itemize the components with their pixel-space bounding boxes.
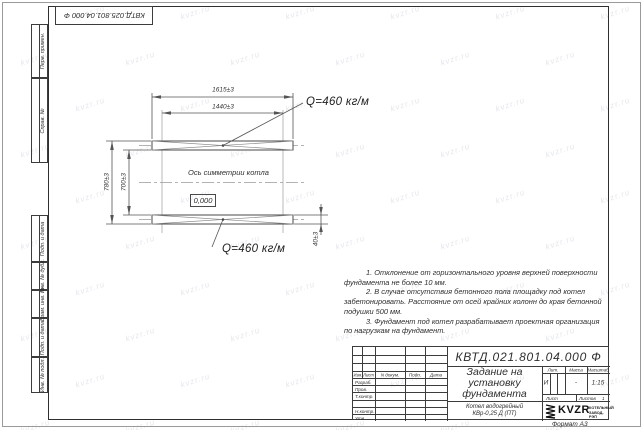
dim-beam-height: 40±3 — [313, 232, 320, 246]
dim-outer-height: 780±3 — [104, 173, 111, 191]
top-stamp-doc-number: КВТД.025.801.04.000 Ф — [64, 11, 145, 20]
dim-arrow — [127, 206, 131, 215]
sheets-label: Листов — [579, 396, 596, 401]
dim-arrow — [284, 95, 293, 99]
elevation-mark: 0,000 — [190, 194, 216, 207]
title-block: Изм. Лист N докум. Подп. Дата Разраб. Пр… — [352, 346, 609, 420]
margin-box-inv-podl: Инв. № подл. — [31, 357, 48, 393]
role-prov: Пров. — [355, 387, 367, 392]
sheets-value: 1 — [602, 396, 605, 401]
margin-box-inv-dubl: Инв. № дубл. — [31, 262, 48, 290]
company-tagline: КОТЕЛЬНЫЙ ЗАВОД-РЭП — [589, 406, 609, 420]
drawing-sheet: kvzr.rukvzr.rukvzr.rukvzr.rukvzr.rukvzr.… — [0, 0, 644, 430]
dim-arrow — [162, 111, 171, 115]
margin-box-label: Инв. № подл. — [40, 358, 46, 392]
role-utv: Утв. — [355, 416, 365, 421]
doc-number-cell: КВТД.021.801.04.000 Ф — [447, 347, 610, 366]
margin-box-label: Подп. и дата — [40, 320, 46, 354]
margin-box-sprav-n: Справ. № — [31, 78, 48, 163]
grid-line — [542, 373, 610, 374]
symmetry-axis-label: Ось симметрии котла — [188, 168, 269, 177]
grid-line — [375, 347, 376, 421]
role-razrab: Разраб. — [355, 380, 372, 385]
spring-icon — [545, 404, 556, 419]
dim-inner-width: 1440±3 — [212, 104, 234, 111]
company-tagline-line1: КОТЕЛЬНЫЙ — [589, 406, 609, 411]
format-label: Формат А3 — [552, 421, 588, 428]
margin-box-perv-primen: Перв. примен. — [31, 24, 48, 78]
mass-header: Масса — [569, 367, 583, 372]
drawing-title-cell: Задание на установку фундамента — [447, 366, 542, 401]
margin-box-podp-data-2: Подп. и дата — [31, 318, 48, 357]
elevation-value: 0,000 — [194, 196, 213, 205]
company-tagline-line2: ЗАВОД-РЭП — [589, 411, 609, 420]
margin-box-podp-data-1: Подп. и дата — [31, 215, 48, 262]
role-tkontr: Т.контр. — [355, 394, 374, 399]
dim-arrow — [152, 95, 161, 99]
product-name: Котел водогрейный КВр-0,25 Д (ПТ) — [461, 404, 529, 418]
top-stamp: КВТД.025.801.04.000 Ф — [55, 6, 153, 25]
margin-box-label: Взам. инв. № — [40, 287, 46, 321]
dim-arrow — [319, 224, 323, 232]
grid-line — [565, 366, 566, 394]
leader-line-top — [223, 103, 303, 146]
mass-value: - — [575, 380, 577, 387]
company-logo-text: KVZR — [558, 404, 590, 416]
grid-line — [353, 414, 447, 415]
note-line: 1. Отклонение от горизонтального уровня … — [344, 268, 602, 287]
header-sign: Подп. — [409, 372, 421, 377]
margin-box-label: Перв. примен. — [40, 33, 46, 70]
scale-header: Масштаб — [587, 367, 608, 372]
note-line: 3. Фундамент под котел разрабатывает про… — [344, 317, 602, 336]
product-name-cell: Котел водогрейный КВр-0,25 Д (ПТ) — [447, 401, 542, 421]
header-list: Лист — [363, 372, 374, 377]
grid-line — [405, 347, 406, 421]
grid-line — [557, 373, 558, 394]
grid-line — [353, 355, 447, 356]
load-label-bottom: Q=460 кг/м — [222, 243, 285, 255]
scale-value: 1:15 — [592, 380, 605, 387]
margin-box-vzam-inv: Взам. инв. № — [31, 290, 48, 318]
role-nkontr: Н.контр. — [355, 409, 374, 414]
dim-arrow — [110, 141, 114, 150]
dim-arrow — [319, 207, 323, 215]
dim-arrow — [127, 150, 131, 159]
grid-line — [576, 394, 577, 401]
grid-line — [353, 363, 447, 364]
dim-arrow — [110, 215, 114, 224]
doc-number: КВТД.021.801.04.000 Ф — [455, 350, 601, 364]
dim-outer-width: 1615±3 — [212, 87, 234, 94]
grid-line — [425, 347, 426, 421]
notes-block: 1. Отклонение от горизонтального уровня … — [344, 268, 602, 336]
margin-box-label: Справ. № — [40, 108, 46, 133]
lit-value: И — [544, 380, 549, 387]
grid-line — [353, 392, 447, 393]
drawing-title: Задание на установку фундамента — [455, 367, 535, 400]
header-doc: N докум. — [381, 372, 400, 377]
header-date: Дата — [430, 372, 442, 377]
dim-inner-height: 700±3 — [121, 173, 128, 191]
margin-box-label: Подп. и дата — [40, 221, 46, 255]
grid-line — [353, 400, 447, 401]
header-izm: Изм. — [354, 372, 363, 377]
grid-line — [550, 373, 551, 394]
lit-header: Лит. — [548, 367, 559, 372]
load-label-top: Q=460 кг/м — [306, 96, 369, 108]
note-line: 2. В случае отсутствия бетонного пола пл… — [344, 287, 602, 316]
sheet-label: Лист — [546, 396, 558, 401]
